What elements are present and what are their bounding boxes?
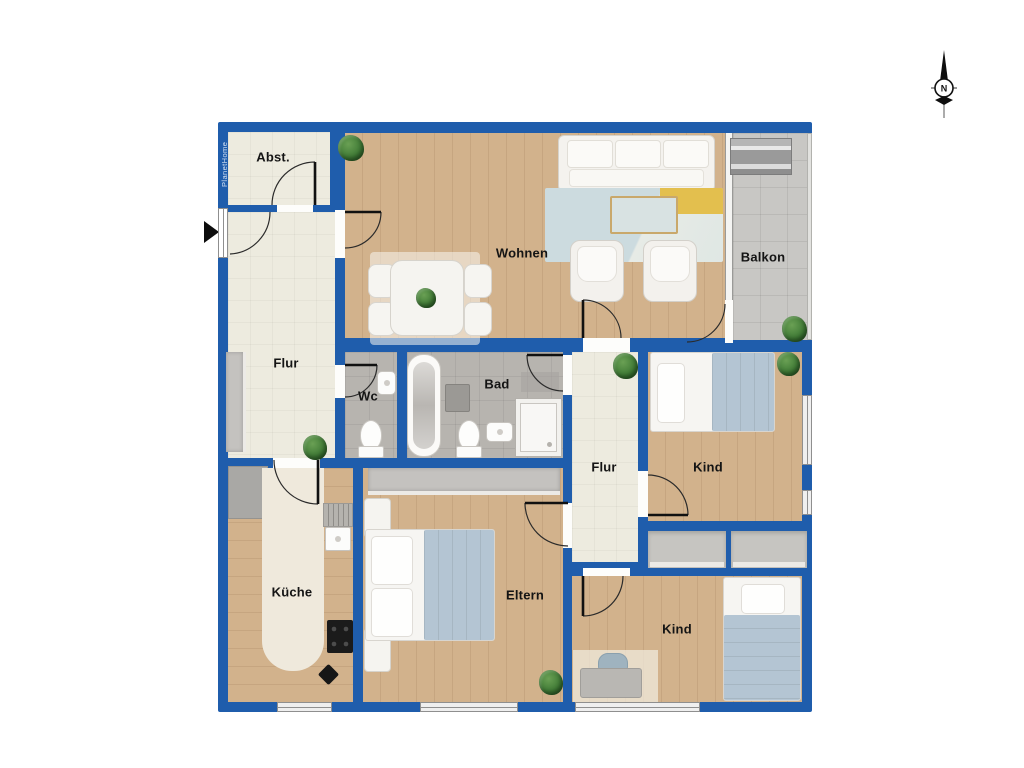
wc-toilet <box>358 420 382 458</box>
door-gap-flur-2 <box>583 338 630 352</box>
pillow <box>657 363 685 423</box>
built-in-closet-left <box>648 531 726 568</box>
pillow <box>371 536 413 585</box>
eltern-wardrobe <box>368 468 560 495</box>
door-gap-kind-1 <box>638 471 648 517</box>
bad-sink <box>486 422 513 442</box>
door-gap-wohnen <box>335 210 345 258</box>
blanket <box>724 615 800 700</box>
room-label-wohnen: Wohnen <box>496 246 548 261</box>
bed-kind-2 <box>723 577 801 701</box>
compass-ribbon <box>935 96 953 105</box>
table-plant-icon <box>416 288 436 308</box>
compass-icon: N <box>924 48 964 120</box>
window-kueche <box>277 702 332 712</box>
dining-chair <box>464 264 492 298</box>
room-label-wc: Wc <box>358 389 378 404</box>
hall-wardrobe <box>226 352 246 452</box>
room-label-flur-2: Flur <box>591 460 616 475</box>
door-gap-wc <box>335 365 345 398</box>
desk <box>580 668 642 698</box>
entrance-door <box>218 208 228 258</box>
sofa <box>558 135 715 192</box>
plant-kind1-icon <box>777 352 800 376</box>
stove <box>327 620 353 653</box>
room-flur-2 <box>572 352 638 562</box>
room-label-kind-1: Kind <box>693 460 723 475</box>
bed-eltern <box>365 529 495 641</box>
armchair <box>570 240 624 302</box>
door-gap-balkon <box>725 300 733 343</box>
window-kind-1-small <box>802 490 812 515</box>
sofa-cushion <box>615 140 661 168</box>
washing-machine <box>445 384 470 412</box>
toilet-tank <box>358 446 384 458</box>
watermark: PlanetHome <box>220 142 229 187</box>
bath-mat <box>521 372 559 392</box>
plant-eltern-icon <box>539 670 563 695</box>
sofa-cushion <box>567 140 613 168</box>
toilet-tank <box>456 446 482 458</box>
armchair <box>643 240 697 302</box>
sofa-cushion <box>663 140 709 168</box>
balcony-railing <box>807 133 812 340</box>
room-label-flur: Flur <box>273 356 298 371</box>
room-label-abstellraum: Abst. <box>256 150 290 165</box>
shower <box>515 398 562 457</box>
awning <box>730 138 792 175</box>
bathtub <box>407 354 441 457</box>
window-eltern <box>420 702 518 712</box>
coffee-table <box>610 196 678 234</box>
compass-north-label: N <box>941 84 948 94</box>
pillow <box>741 584 785 614</box>
door-gap-kind-2 <box>583 568 630 576</box>
plant-balkon-icon <box>782 316 807 342</box>
bad-toilet <box>456 420 480 458</box>
window-kind-2 <box>575 702 700 712</box>
kitchen-sink-unit <box>323 503 353 527</box>
plant-wohnen-icon <box>338 135 364 161</box>
built-in-closet-right <box>731 531 807 568</box>
door-gap-bad <box>563 355 572 395</box>
room-label-bad: Bad <box>484 377 509 392</box>
blanket <box>424 530 494 640</box>
bed-kind-1 <box>650 352 775 432</box>
plant-flur2-icon <box>613 353 638 379</box>
dining-chair <box>464 302 492 336</box>
door-gap-eltern <box>563 503 572 548</box>
room-label-kueche: Küche <box>272 585 313 600</box>
window-kind-1 <box>802 395 812 465</box>
floorplan-page: Abst. Wohnen Balkon Flur Wc Bad Flur Kin… <box>0 0 1024 768</box>
room-label-eltern: Eltern <box>506 588 544 603</box>
floorplan: Abst. Wohnen Balkon Flur Wc Bad Flur Kin… <box>218 122 812 712</box>
wc-sink <box>377 371 396 395</box>
kitchen-sink <box>325 527 351 551</box>
entry-arrow-icon <box>204 221 219 243</box>
room-abstellraum <box>228 132 330 205</box>
room-label-balkon: Balkon <box>741 250 786 265</box>
pillow <box>371 588 413 637</box>
door-gap-abstellraum <box>277 205 313 212</box>
kitchen-walkway <box>262 468 324 671</box>
room-label-kind-2: Kind <box>662 622 692 637</box>
plant-flur-icon <box>303 435 327 460</box>
blanket <box>712 353 774 431</box>
